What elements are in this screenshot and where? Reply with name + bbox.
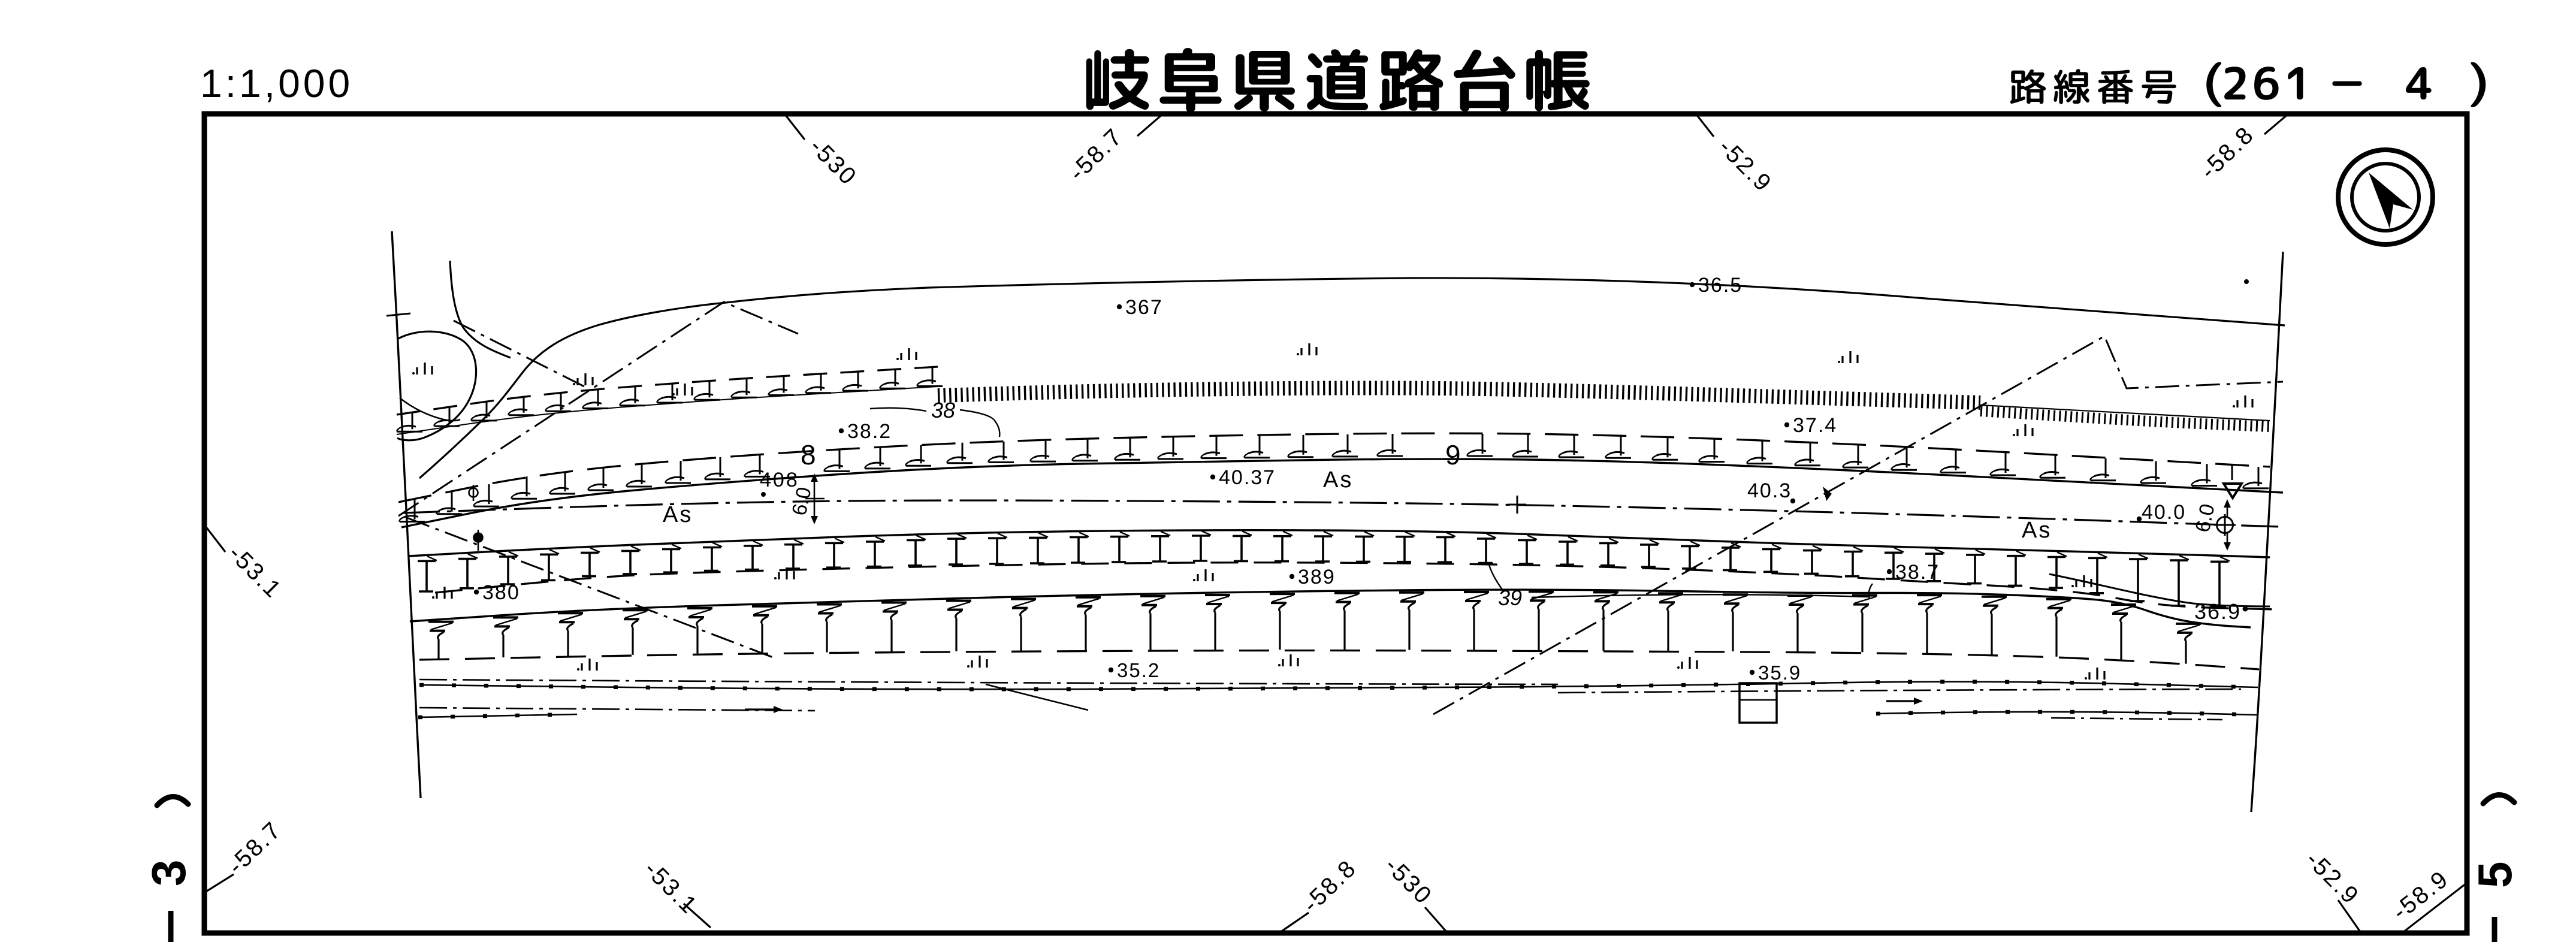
svg-text:40.3: 40.3 — [1747, 479, 1792, 502]
svg-text:3: 3 — [142, 860, 195, 887]
svg-text:38.2: 38.2 — [847, 420, 892, 443]
svg-text:389: 389 — [1298, 566, 1336, 588]
svg-text:As: As — [1323, 467, 1353, 493]
svg-text:As: As — [2022, 518, 2052, 543]
svg-text:36.9: 36.9 — [2194, 599, 2241, 624]
svg-text:5: 5 — [2468, 862, 2521, 889]
svg-text:40.0: 40.0 — [2142, 501, 2186, 524]
svg-text:8: 8 — [801, 439, 816, 470]
svg-text:380: 380 — [482, 581, 520, 604]
svg-text:As: As — [663, 502, 693, 527]
svg-text:1:1,000: 1:1,000 — [200, 61, 353, 105]
svg-text:37.4: 37.4 — [1793, 414, 1837, 437]
svg-text:367: 367 — [1125, 296, 1163, 319]
svg-text:408: 408 — [760, 469, 799, 491]
svg-text:35.9: 35.9 — [1758, 662, 1801, 684]
svg-text:38: 38 — [931, 398, 955, 422]
svg-text:9: 9 — [1445, 439, 1461, 470]
svg-text:40.37: 40.37 — [1219, 466, 1276, 489]
svg-text:36.5: 36.5 — [1698, 274, 1743, 297]
svg-text:38.7: 38.7 — [1895, 561, 1940, 584]
svg-text:35.2: 35.2 — [1117, 659, 1160, 681]
